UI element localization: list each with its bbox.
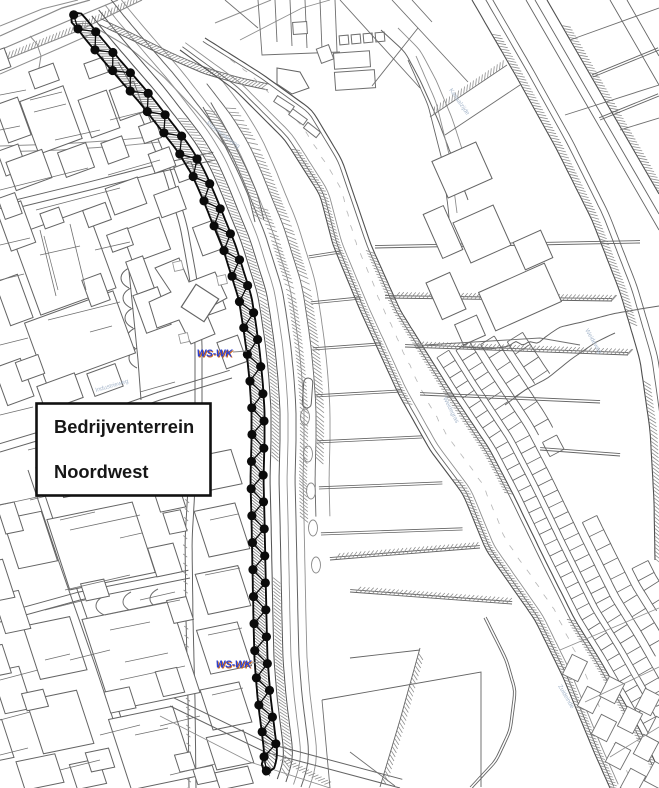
svg-text:Noordwest: Noordwest — [54, 461, 148, 482]
svg-text:WS-WK: WS-WK — [216, 660, 252, 671]
svg-text:Bedrijventerrein: Bedrijventerrein — [54, 416, 194, 437]
svg-text:WS-WK: WS-WK — [197, 349, 233, 360]
